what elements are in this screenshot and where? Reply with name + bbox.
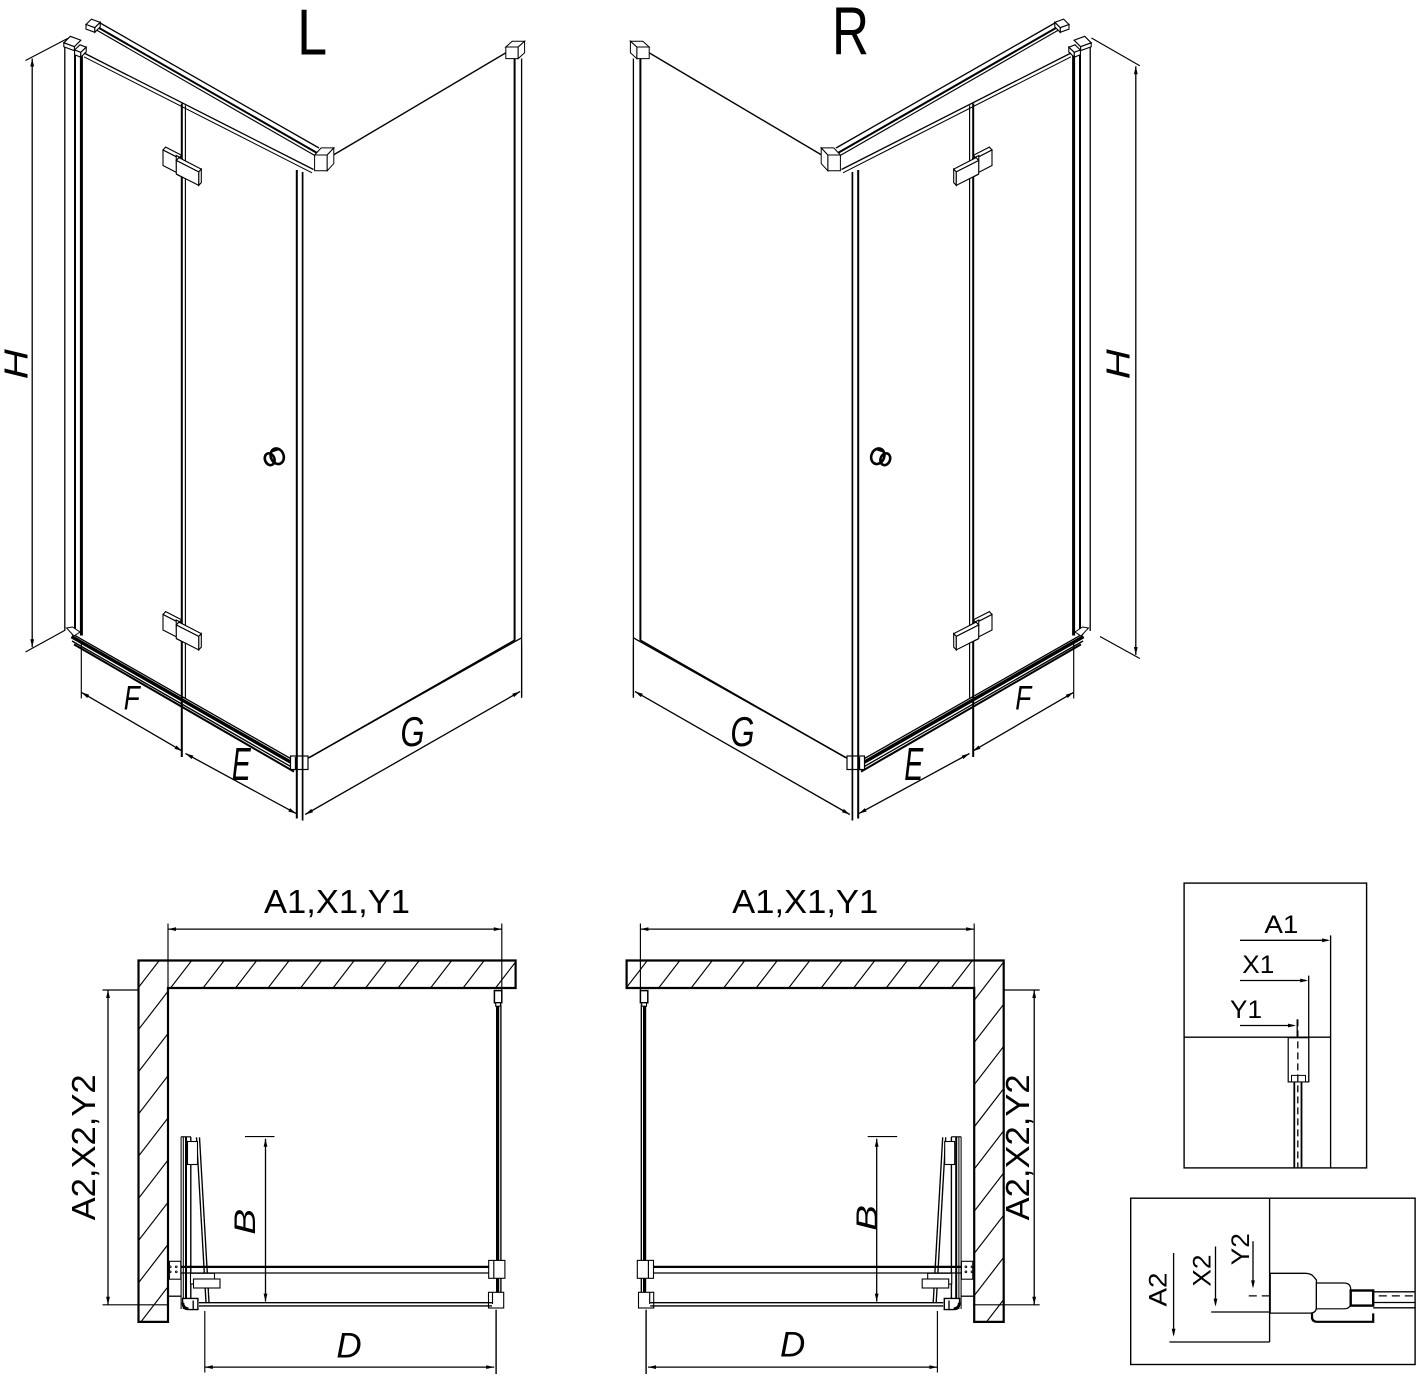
svg-text:G: G: [401, 708, 425, 755]
svg-text:Y2: Y2: [1227, 1233, 1255, 1265]
svg-text:A2,X2,Y2: A2,X2,Y2: [999, 1074, 1036, 1220]
svg-text:H: H: [0, 349, 34, 379]
svg-text:L: L: [297, 0, 327, 69]
svg-text:E: E: [904, 738, 924, 790]
svg-text:X2: X2: [1188, 1255, 1216, 1287]
svg-text:F: F: [124, 680, 142, 718]
svg-text:B: B: [229, 1209, 262, 1235]
svg-text:Y1: Y1: [1230, 996, 1262, 1024]
svg-text:A1: A1: [1264, 911, 1298, 939]
svg-text:B: B: [851, 1205, 884, 1231]
svg-text:E: E: [232, 738, 252, 790]
svg-text:A2,X2,Y2: A2,X2,Y2: [65, 1074, 102, 1220]
svg-text:A2: A2: [1144, 1273, 1172, 1307]
svg-text:G: G: [731, 708, 755, 755]
svg-text:A1,X1,Y1: A1,X1,Y1: [732, 883, 878, 920]
svg-text:X1: X1: [1242, 951, 1274, 979]
svg-text:R: R: [832, 0, 869, 70]
svg-text:F: F: [1015, 680, 1033, 718]
svg-text:D: D: [336, 1326, 361, 1365]
svg-text:H: H: [1099, 349, 1136, 379]
svg-text:A1,X1,Y1: A1,X1,Y1: [264, 883, 410, 920]
svg-text:D: D: [780, 1326, 805, 1365]
